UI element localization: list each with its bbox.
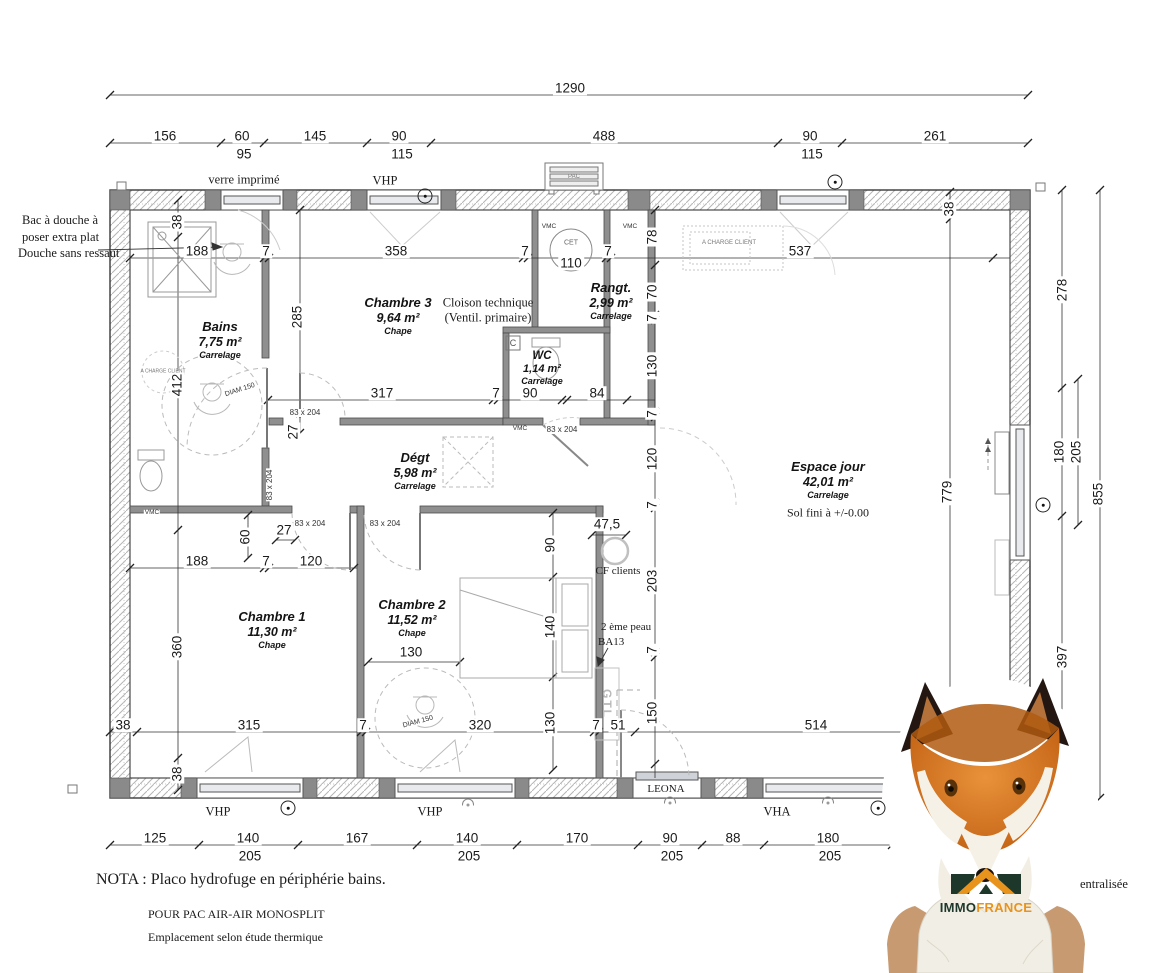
brand-immo: IMMO	[940, 900, 977, 915]
downspout	[1036, 183, 1045, 191]
doors	[187, 210, 848, 778]
turning-circle	[162, 355, 262, 455]
fixtures	[138, 222, 783, 778]
cet-heater	[550, 229, 592, 271]
immofrance-logo: IMMOFRANCE	[936, 866, 1036, 915]
toilet-bains	[138, 450, 164, 491]
immofrance-logo-icon	[949, 866, 1023, 896]
turning-circle	[375, 668, 475, 768]
fox-mascot	[882, 678, 1098, 973]
exterior-openings	[197, 190, 1030, 798]
downspout	[117, 182, 126, 190]
cf-clients-circle	[602, 538, 628, 564]
pac-unit	[545, 163, 603, 194]
attic-hatch	[443, 437, 493, 487]
wall-posts	[110, 190, 1030, 798]
interior-walls	[130, 210, 655, 778]
floorplan-page: 1290 855 779 156 60 145 90 488 90 261 95…	[0, 0, 1170, 973]
kitchen-client	[683, 226, 783, 270]
wheelchair-symbol	[194, 243, 443, 727]
toilet-wc	[506, 336, 560, 379]
leader-lines	[98, 243, 608, 666]
bed	[460, 578, 592, 678]
downspout	[68, 785, 77, 793]
brand-france: FRANCE	[976, 900, 1032, 915]
floor-plan-drawing	[0, 0, 1170, 973]
exterior-walls	[68, 182, 1045, 798]
